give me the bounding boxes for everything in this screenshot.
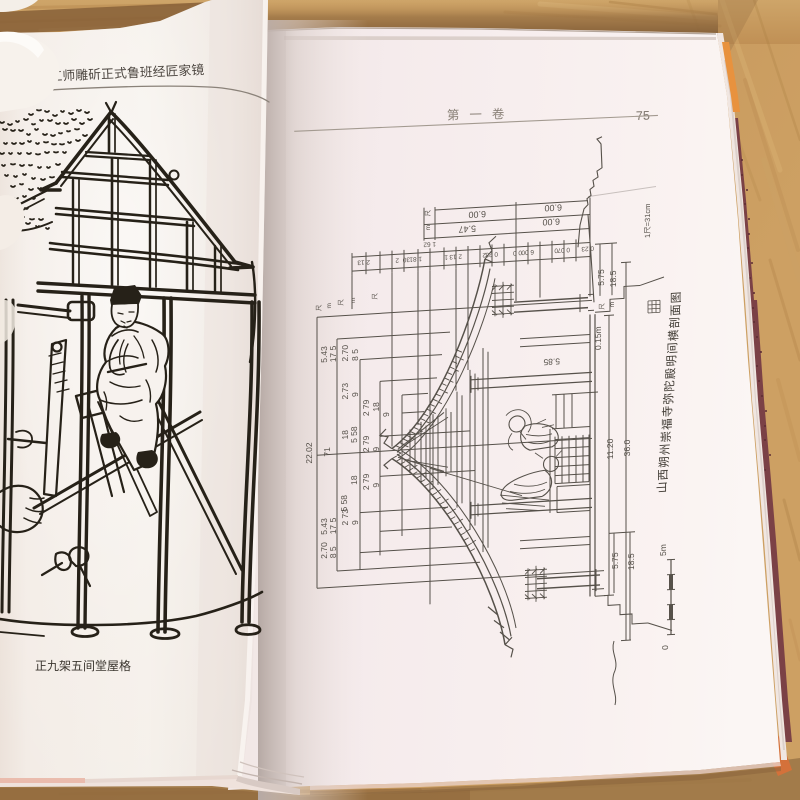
svg-text:崇: 崇	[660, 431, 673, 443]
svg-text:尺: 尺	[598, 303, 606, 310]
svg-text:2.73: 2.73	[340, 382, 350, 399]
svg-text:2.70: 2.70	[340, 344, 350, 361]
svg-text:2: 2	[395, 256, 399, 263]
svg-text:6 00: 6 00	[521, 248, 534, 256]
svg-text:2 13: 2 13	[449, 252, 462, 260]
svg-text:尺: 尺	[337, 299, 345, 306]
svg-text:面: 面	[670, 304, 682, 316]
svg-text:山: 山	[656, 481, 669, 493]
svg-text:9: 9	[350, 520, 360, 526]
svg-text:0 0: 0 0	[513, 249, 522, 257]
svg-text:明: 明	[666, 355, 679, 367]
svg-text:18: 18	[349, 475, 359, 485]
svg-text:第一卷: 第一卷	[447, 106, 515, 123]
svg-text:2 79: 2 79	[361, 435, 371, 452]
svg-text:福: 福	[660, 418, 674, 430]
svg-text:5 58: 5 58	[349, 426, 359, 443]
svg-text:朔: 朔	[657, 456, 671, 468]
svg-text:1: 1	[444, 253, 448, 260]
svg-text:2 13: 2 13	[357, 258, 370, 266]
svg-text:横: 横	[666, 329, 680, 342]
svg-text:9: 9	[371, 446, 381, 452]
svg-text:5.85: 5.85	[543, 356, 560, 367]
svg-text:6.00: 6.00	[468, 209, 486, 220]
svg-text:5m: 5m	[658, 544, 668, 556]
svg-text:9: 9	[350, 392, 360, 398]
svg-text:5.47: 5.47	[458, 223, 476, 234]
svg-text:8 5: 8 5	[350, 349, 360, 362]
svg-text:m: m	[425, 225, 432, 231]
svg-text:5 58: 5 58	[339, 494, 349, 511]
svg-text:0 07: 0 07	[557, 246, 570, 254]
svg-text:剖: 剖	[667, 317, 681, 329]
svg-text:0.15m: 0.15m	[593, 326, 603, 350]
svg-text:6.00: 6.00	[542, 216, 560, 227]
svg-text:0 23: 0 23	[485, 250, 498, 258]
svg-text:18: 18	[371, 402, 381, 412]
svg-text:11.20: 11.20	[605, 438, 615, 460]
svg-text:陀: 陀	[663, 380, 677, 392]
svg-text:1 62: 1 62	[423, 240, 436, 248]
svg-text:71: 71	[322, 447, 332, 457]
svg-text:m: m	[326, 303, 333, 309]
svg-text:17 5: 17 5	[328, 517, 338, 534]
svg-text:西: 西	[658, 469, 670, 481]
svg-text:1尺=31cm: 1尺=31cm	[643, 203, 652, 238]
svg-text:5.75: 5.75	[610, 552, 620, 569]
svg-text:18.5: 18.5	[626, 553, 636, 570]
svg-text:图: 图	[670, 291, 683, 303]
svg-text:2 79: 2 79	[361, 399, 371, 416]
svg-text:0: 0	[660, 645, 670, 651]
svg-text:9: 9	[371, 482, 381, 488]
svg-text:8 5: 8 5	[328, 546, 338, 559]
svg-text:尺: 尺	[424, 209, 432, 216]
svg-text:1 81: 1 81	[409, 255, 422, 263]
svg-text:尺: 尺	[371, 292, 379, 299]
svg-text:18: 18	[340, 429, 350, 439]
svg-text:弥: 弥	[662, 393, 676, 405]
svg-text:22.02: 22.02	[304, 442, 314, 464]
svg-text:2 79: 2 79	[361, 473, 371, 490]
svg-text:正九架五间堂屋格: 正九架五间堂屋格	[35, 658, 131, 673]
svg-text:30: 30	[402, 256, 410, 263]
svg-text:17 5: 17 5	[328, 345, 338, 362]
svg-text:州: 州	[659, 443, 672, 455]
svg-text:尺: 尺	[315, 304, 323, 311]
svg-text:18.5: 18.5	[608, 270, 618, 287]
svg-text:36.0: 36.0	[622, 439, 632, 456]
svg-text:m: m	[350, 297, 357, 303]
svg-text:殿: 殿	[665, 367, 678, 380]
svg-text:6.00: 6.00	[544, 202, 562, 213]
svg-text:0 23: 0 23	[581, 244, 594, 252]
svg-text:间: 间	[667, 342, 680, 354]
svg-text:5.75: 5.75	[596, 269, 606, 286]
svg-text:m: m	[609, 302, 616, 308]
svg-text:寺: 寺	[662, 405, 675, 417]
svg-text:9: 9	[381, 412, 391, 418]
